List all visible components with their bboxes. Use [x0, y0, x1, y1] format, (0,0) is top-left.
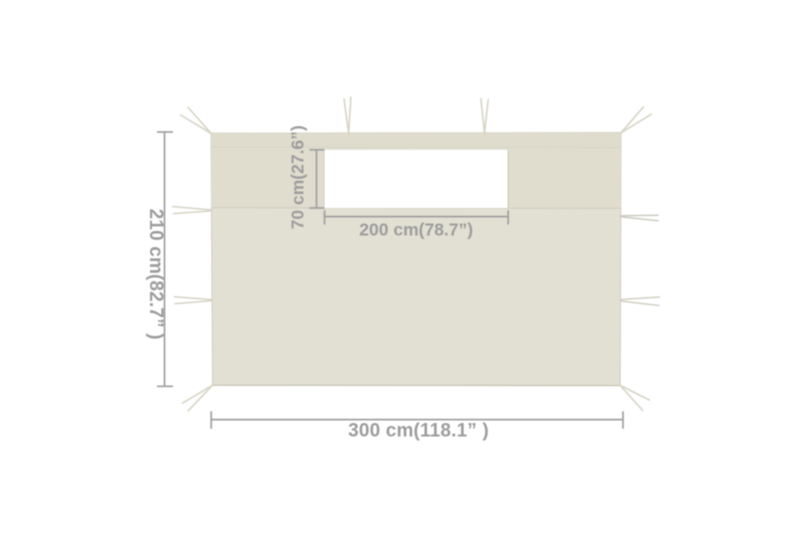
svg-text:200 cm(78.7”): 200 cm(78.7”)	[359, 219, 473, 239]
svg-text:70 cm(27.6”): 70 cm(27.6”)	[288, 125, 308, 229]
svg-text:210 cm(82.7” ): 210 cm(82.7” )	[145, 209, 166, 340]
svg-text:300 cm(118.1” ): 300 cm(118.1” )	[348, 421, 489, 442]
